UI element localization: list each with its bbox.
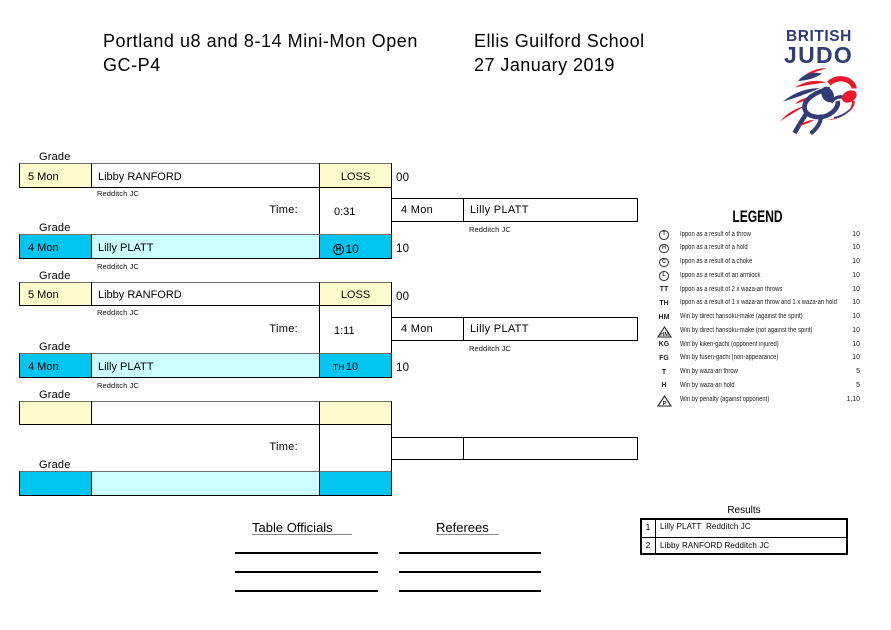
svg-text:P: P <box>663 401 667 407</box>
svg-text:HM: HM <box>660 332 669 338</box>
